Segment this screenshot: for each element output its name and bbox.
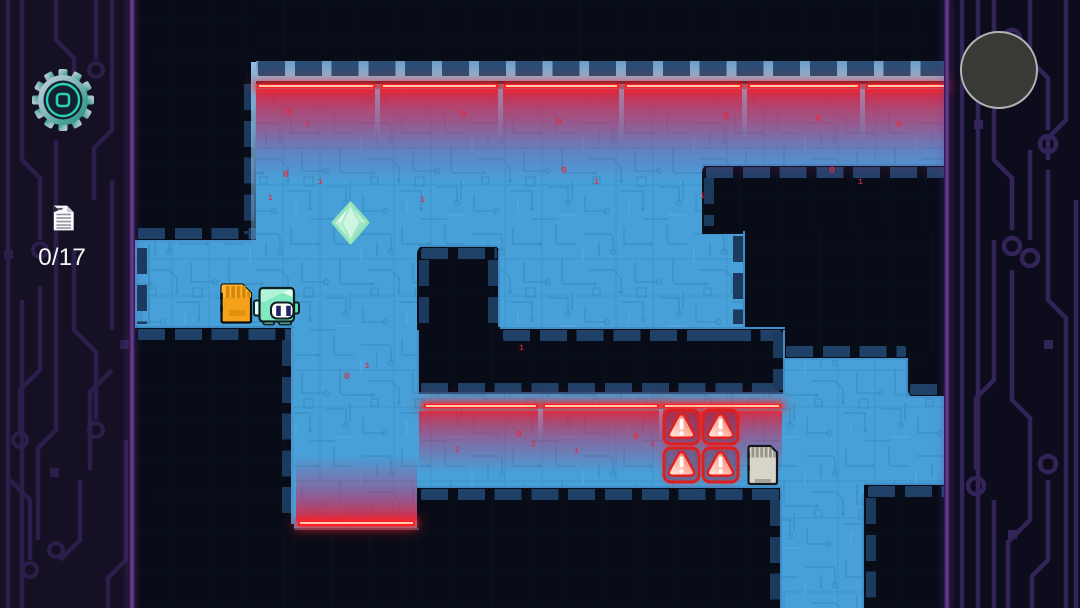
svg-text:0/17: 0/17 [38,244,86,271]
